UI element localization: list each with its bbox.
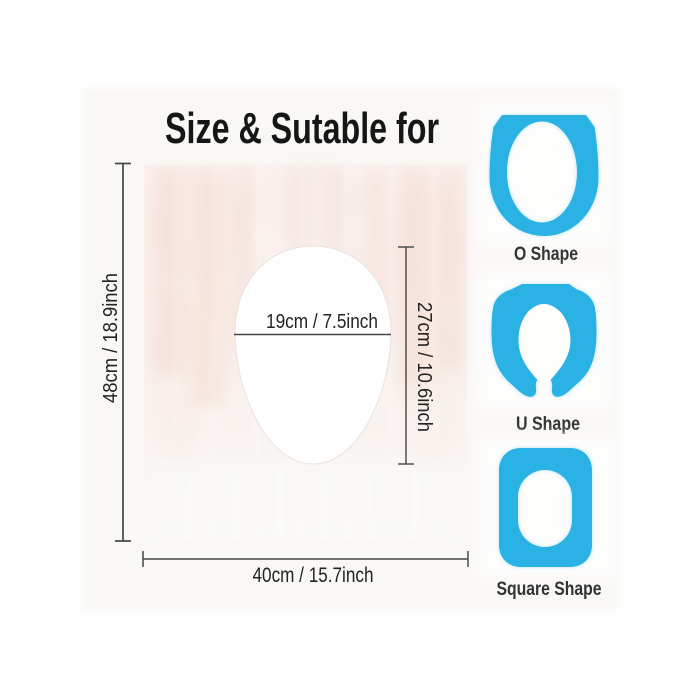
svg-text:40cm / 15.7inch: 40cm / 15.7inch: [253, 564, 374, 587]
svg-text:19cm / 7.5inch: 19cm / 7.5inch: [266, 311, 378, 333]
svg-text:Size & Sutable for: Size & Sutable for: [165, 104, 439, 153]
svg-text:48cm / 18.9inch: 48cm / 18.9inch: [100, 273, 122, 403]
svg-text:U Shape: U Shape: [516, 413, 580, 435]
svg-text:Square Shape: Square Shape: [497, 578, 602, 600]
svg-text:O Shape: O Shape: [514, 243, 578, 265]
svg-text:27cm / 10.6inch: 27cm / 10.6inch: [413, 302, 435, 432]
